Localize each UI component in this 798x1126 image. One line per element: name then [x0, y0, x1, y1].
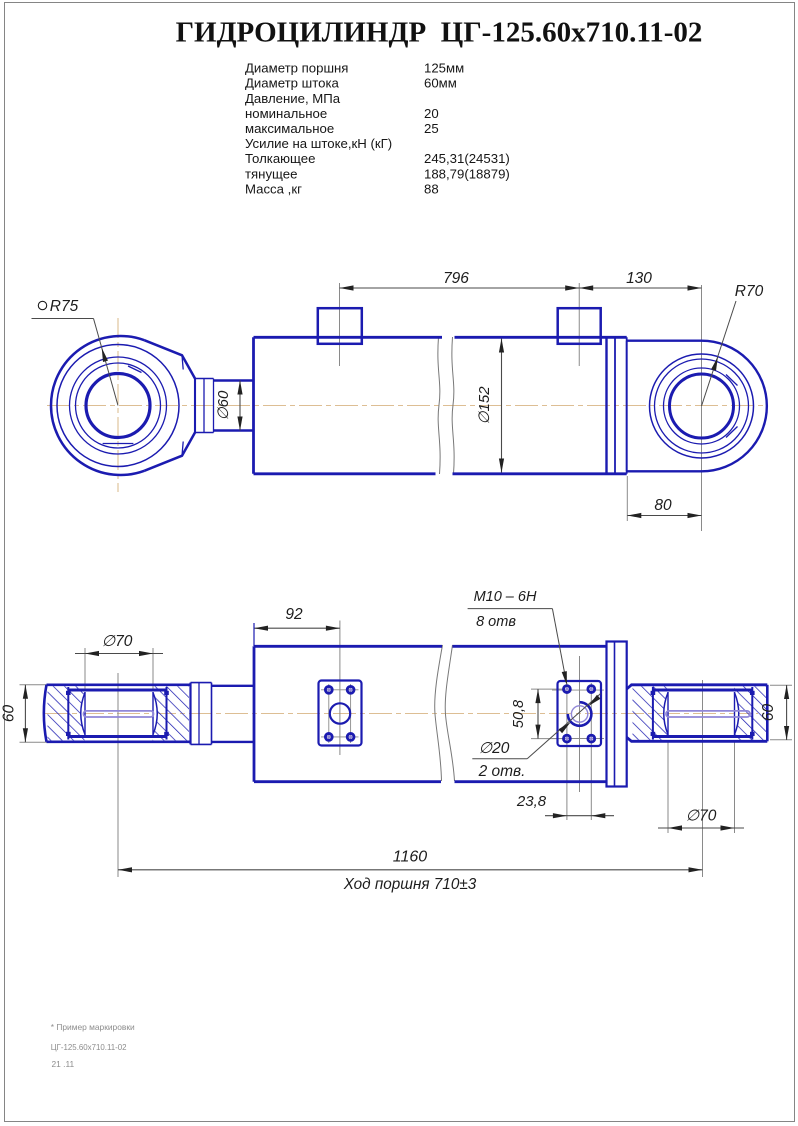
svg-text:номинальное: номинальное	[245, 106, 327, 121]
svg-text:188,79(18879): 188,79(18879)	[424, 166, 510, 181]
svg-text:∅20: ∅20	[479, 740, 510, 757]
svg-text:∅152: ∅152	[476, 386, 493, 425]
svg-text:Давление, МПа: Давление, МПа	[245, 91, 341, 106]
svg-text:ЦГ-125.60х710.11-02: ЦГ-125.60х710.11-02	[51, 1043, 127, 1052]
svg-text:* Пример маркировки: * Пример маркировки	[51, 1022, 135, 1032]
svg-text:ГИДРОЦИЛИНДР ЦГ-125.60х710.11: ГИДРОЦИЛИНДР ЦГ-125.60х710.11-02	[176, 17, 703, 49]
svg-text:125мм: 125мм	[424, 61, 464, 76]
svg-text:Диаметр поршня: Диаметр поршня	[245, 61, 348, 76]
svg-text:1160: 1160	[393, 849, 428, 866]
svg-text:92: 92	[285, 606, 303, 623]
svg-text:Толкающее: Толкающее	[245, 151, 315, 166]
svg-text:Ход поршня 710±3: Ход поршня 710±3	[343, 876, 477, 893]
svg-text:50,8: 50,8	[511, 700, 527, 728]
svg-text:23,8: 23,8	[516, 793, 547, 810]
svg-text:∅70: ∅70	[102, 633, 133, 650]
svg-text:20: 20	[424, 106, 439, 121]
svg-text:130: 130	[626, 270, 652, 287]
svg-text:Диаметр штока: Диаметр штока	[245, 76, 339, 91]
svg-text:60: 60	[760, 704, 777, 722]
svg-text:21 .11: 21 .11	[52, 1059, 75, 1069]
svg-text:88: 88	[424, 181, 439, 196]
svg-text:25: 25	[424, 121, 439, 136]
svg-text:М10 – 6Н: М10 – 6Н	[474, 589, 537, 605]
svg-text:2 отв.: 2 отв.	[478, 763, 526, 780]
svg-text:8 отв: 8 отв	[476, 614, 516, 630]
svg-text:Масса ,кг: Масса ,кг	[245, 181, 302, 196]
svg-text:796: 796	[443, 270, 469, 287]
svg-text:тянущее: тянущее	[245, 166, 297, 181]
svg-text:максимальное: максимальное	[245, 121, 334, 136]
svg-text:∅60: ∅60	[215, 390, 232, 420]
svg-text:∅70: ∅70	[686, 808, 717, 825]
svg-text:Усилие на штоке,кН (кГ): Усилие на штоке,кН (кГ)	[245, 136, 392, 151]
svg-text:60мм: 60мм	[424, 76, 457, 91]
svg-text:80: 80	[654, 497, 672, 514]
svg-text:245,31(24531): 245,31(24531)	[424, 151, 510, 166]
svg-text:60: 60	[1, 705, 18, 723]
svg-text:R75: R75	[50, 298, 79, 315]
svg-text:R70: R70	[735, 283, 764, 300]
